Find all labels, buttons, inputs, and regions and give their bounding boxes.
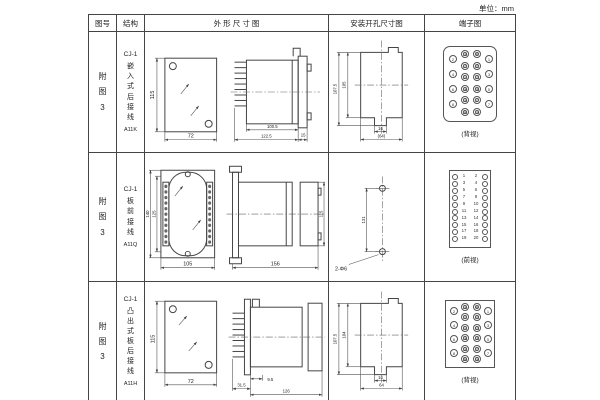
row2-terminal-cell: 1 3 5 7 9 11 13 15 17 19 2 4 6 8 10 12 1… xyxy=(425,153,515,282)
terminal-diagram: 2468101214161820911131517191357 xyxy=(443,46,497,122)
row1-install-drawing: 107.5 105 16 (64) xyxy=(329,32,425,153)
dim-side-height: 115 xyxy=(319,210,324,217)
terminal-circle xyxy=(482,215,488,221)
terminal-circle: 7 xyxy=(485,100,493,108)
contact-arrow-icon xyxy=(191,106,199,116)
row1-outline-drawing: 115 72 xyxy=(145,32,329,153)
contact-arrow-icon xyxy=(175,186,183,196)
terminal-circle xyxy=(452,174,458,180)
contact-arrow-icon xyxy=(189,342,197,351)
structure-code-label: A11H xyxy=(124,381,137,387)
terminal-circle xyxy=(452,209,458,215)
terminal-circle: 14 xyxy=(461,324,469,332)
terminal-circle xyxy=(482,174,488,180)
dim-body-depth: 100.5 xyxy=(267,124,278,129)
hole-size-label: 2-Φ6 xyxy=(335,266,347,272)
row3-structure: CJ-1 凸出式板后接线 A11H xyxy=(117,282,145,400)
row1-figure-no: 附 图 3 xyxy=(89,32,117,153)
extension-lines xyxy=(337,52,402,141)
figure-no-text: 附 图 3 xyxy=(99,69,107,115)
terminal-circle: 10 xyxy=(461,303,469,311)
front-view xyxy=(161,170,215,258)
terminal-diagram: 2468101214161820911131517191357 xyxy=(445,300,495,368)
dim-slot-width: 16 xyxy=(378,126,383,131)
terminal-circle: 17 xyxy=(473,96,481,104)
row2-figure-no: 附 图 3 xyxy=(89,153,117,282)
row2-install-drawing: 131 2-Φ6 xyxy=(329,153,425,282)
figure-no-text: 附 图 3 xyxy=(99,319,107,365)
terminal-circle: 1 xyxy=(485,55,493,63)
terminal-circle xyxy=(452,229,458,235)
terminal-circle xyxy=(482,222,488,228)
structure-type-label: 凸出式板后接线 xyxy=(127,307,134,378)
terminal-circle: 18 xyxy=(461,345,469,353)
terminal-circle: 20 xyxy=(461,355,469,363)
terminal-circle: 6 xyxy=(449,85,457,93)
terminal-circle: 9 xyxy=(473,303,481,311)
dim-cutout-outer-height: 107.5 xyxy=(332,333,337,344)
dim-pin-depth: 31.5 xyxy=(237,382,246,387)
terminal-circle: 19 xyxy=(473,355,481,363)
row2-outline-drawing: 140 125 105 156 xyxy=(145,153,329,282)
col-header-figure-no: 图号 xyxy=(89,15,117,32)
terminal-circle: 20 xyxy=(461,108,469,116)
terminal-circle: 3 xyxy=(484,321,492,329)
dim-flange-depth: 15 xyxy=(301,133,306,138)
dim-front-height-outer: 140 xyxy=(145,210,150,218)
terminal-circle xyxy=(452,222,458,228)
unit-label: 单位：mm xyxy=(479,3,514,14)
row3-figure-no: 附 图 3 xyxy=(89,282,117,400)
model-label: CJ-1 xyxy=(124,51,138,58)
terminal-circle xyxy=(452,236,458,242)
model-label: CJ-1 xyxy=(124,186,138,193)
front-view xyxy=(165,58,217,132)
dimension-table: 图号 结构 外 形 尺 寸 图 安装开孔尺寸图 端子图 附 图 3 CJ-1 嵌… xyxy=(88,14,516,400)
terminal-circle: 6 xyxy=(450,335,458,343)
terminal-circle xyxy=(482,195,488,201)
terminal-circle xyxy=(482,209,488,215)
install-cutout-a11k: 107.5 105 16 (64) xyxy=(329,32,424,152)
contact-arrow-icon xyxy=(193,220,201,230)
terminal-circle: 5 xyxy=(485,85,493,93)
contact-arrow-icon xyxy=(181,84,189,94)
terminal-circle: 12 xyxy=(461,313,469,321)
terminal-circle: 15 xyxy=(473,334,481,342)
terminal-view-label: (前视) xyxy=(461,254,478,264)
side-view xyxy=(230,166,321,263)
terminal-view-label: (背视) xyxy=(461,128,478,138)
dim-front-height: 115 xyxy=(150,91,156,100)
model-label: CJ-1 xyxy=(124,296,138,303)
extension-lines xyxy=(337,303,402,390)
front-view xyxy=(165,301,217,373)
terminal-circle: 11 xyxy=(473,62,481,70)
terminal-circle xyxy=(482,188,488,194)
terminal-circle: 3 xyxy=(485,70,493,78)
terminal-circle: 14 xyxy=(461,73,469,81)
terminal-circle xyxy=(452,202,458,208)
terminal-circle: 7 xyxy=(484,349,492,357)
row3-install-drawing: 107.5 104 16 64 xyxy=(329,282,425,400)
manual-page: 单位：mm 图号 结构 外 形 尺 寸 图 安装开孔尺寸图 端子图 附 图 3 … xyxy=(0,0,600,400)
terminal-circle: 8 xyxy=(450,349,458,357)
terminal-diagram: 1 3 5 7 9 11 13 15 17 19 2 4 6 8 10 12 1… xyxy=(449,170,491,248)
dim-cutout-inner-height: 104 xyxy=(342,330,347,338)
terminal-circle: 11 xyxy=(473,313,481,321)
structure-type-label: 板前接线 xyxy=(127,197,134,238)
row2-structure: CJ-1 板前接线 A11Q xyxy=(117,153,145,282)
terminal-numbers-even: 2 4 6 8 10 12 14 16 18 20 xyxy=(471,173,481,242)
terminal-circle: 5 xyxy=(484,335,492,343)
dim-cutout-inner-height: 105 xyxy=(342,81,347,89)
contact-arrow-icon xyxy=(179,316,187,325)
terminal-circle xyxy=(452,195,458,201)
terminal-circle xyxy=(452,215,458,221)
dim-plate-depth: 9.5 xyxy=(267,376,274,381)
extension-lines xyxy=(155,58,217,142)
outline-drawing-a11h: 115 72 xyxy=(145,285,328,399)
terminal-circle: 15 xyxy=(473,85,481,93)
terminal-circle: 18 xyxy=(461,96,469,104)
terminal-circle: 2 xyxy=(449,55,457,63)
dim-body-depth: 126 xyxy=(283,388,291,393)
dim-front-width: 72 xyxy=(188,134,194,140)
dim-side-length: 156 xyxy=(271,262,280,268)
structure-code-label: A11K xyxy=(124,127,137,133)
terminal-circle: 16 xyxy=(461,334,469,342)
structure-code-label: A11Q xyxy=(124,242,138,248)
dim-slot-width: 16 xyxy=(378,375,383,380)
terminal-circle: 4 xyxy=(450,321,458,329)
col-header-install-dims: 安装开孔尺寸图 xyxy=(329,15,425,32)
terminal-circle: 10 xyxy=(461,50,469,58)
terminal-circle: 8 xyxy=(449,100,457,108)
row3-terminal-cell: 2468101214161820911131517191357 (背视) xyxy=(425,282,515,400)
terminal-circle: 13 xyxy=(473,73,481,81)
outline-drawing-a11k: 115 72 xyxy=(145,32,328,152)
terminal-circle: 17 xyxy=(473,345,481,353)
terminal-circle: 13 xyxy=(473,324,481,332)
terminal-circle xyxy=(482,202,488,208)
outline-drawing-a11q: 140 125 105 156 xyxy=(145,153,328,282)
terminal-circle xyxy=(452,188,458,194)
structure-type-label: 嵌入式后接线 xyxy=(127,62,134,123)
terminal-circle xyxy=(482,229,488,235)
col-header-terminal-diagram: 端子图 xyxy=(425,15,515,32)
terminal-circle xyxy=(482,181,488,187)
dim-front-width: 105 xyxy=(183,262,192,268)
terminal-view-label: (背视) xyxy=(461,374,478,384)
terminal-circle: 9 xyxy=(473,50,481,58)
dim-hole-distance: 131 xyxy=(361,216,366,224)
terminal-circle xyxy=(482,236,488,242)
terminal-circle: 1 xyxy=(484,307,492,315)
dim-cutout-outer-height: 107.5 xyxy=(332,83,337,94)
terminal-numbers-odd: 1 3 5 7 9 11 13 15 17 19 xyxy=(459,173,469,242)
terminal-circle: 2 xyxy=(450,307,458,315)
col-header-structure: 结构 xyxy=(117,15,145,32)
terminal-circle: 4 xyxy=(449,70,457,78)
row1-terminal-cell: 2468101214161820911131517191357 (背视) xyxy=(425,32,515,153)
install-holes-a11q: 131 2-Φ6 xyxy=(329,153,424,282)
dim-front-height: 115 xyxy=(150,334,156,343)
extension-lines xyxy=(149,170,215,269)
install-cutout-a11h: 107.5 104 16 64 xyxy=(329,285,424,399)
extension-lines xyxy=(155,301,217,387)
side-view xyxy=(235,48,312,128)
terminal-circle: 19 xyxy=(473,108,481,116)
dim-front-width: 72 xyxy=(188,378,194,384)
terminal-circle xyxy=(452,181,458,187)
row3-outline-drawing: 115 72 xyxy=(145,282,329,400)
leader-line xyxy=(349,255,379,265)
figure-no-text: 附 图 3 xyxy=(99,194,107,240)
dim-total-depth: 122.5 xyxy=(261,134,272,139)
terminal-circle: 12 xyxy=(461,62,469,70)
dim-cutout-width: 64 xyxy=(379,382,384,387)
terminal-circle: 16 xyxy=(461,85,469,93)
col-header-outline-dims: 外 形 尺 寸 图 xyxy=(145,15,329,32)
extension-lines xyxy=(233,182,325,270)
dim-cutout-width: (64) xyxy=(378,134,386,139)
row1-structure: CJ-1 嵌入式后接线 A11K xyxy=(117,32,145,153)
dim-front-height-inner: 125 xyxy=(151,210,156,218)
